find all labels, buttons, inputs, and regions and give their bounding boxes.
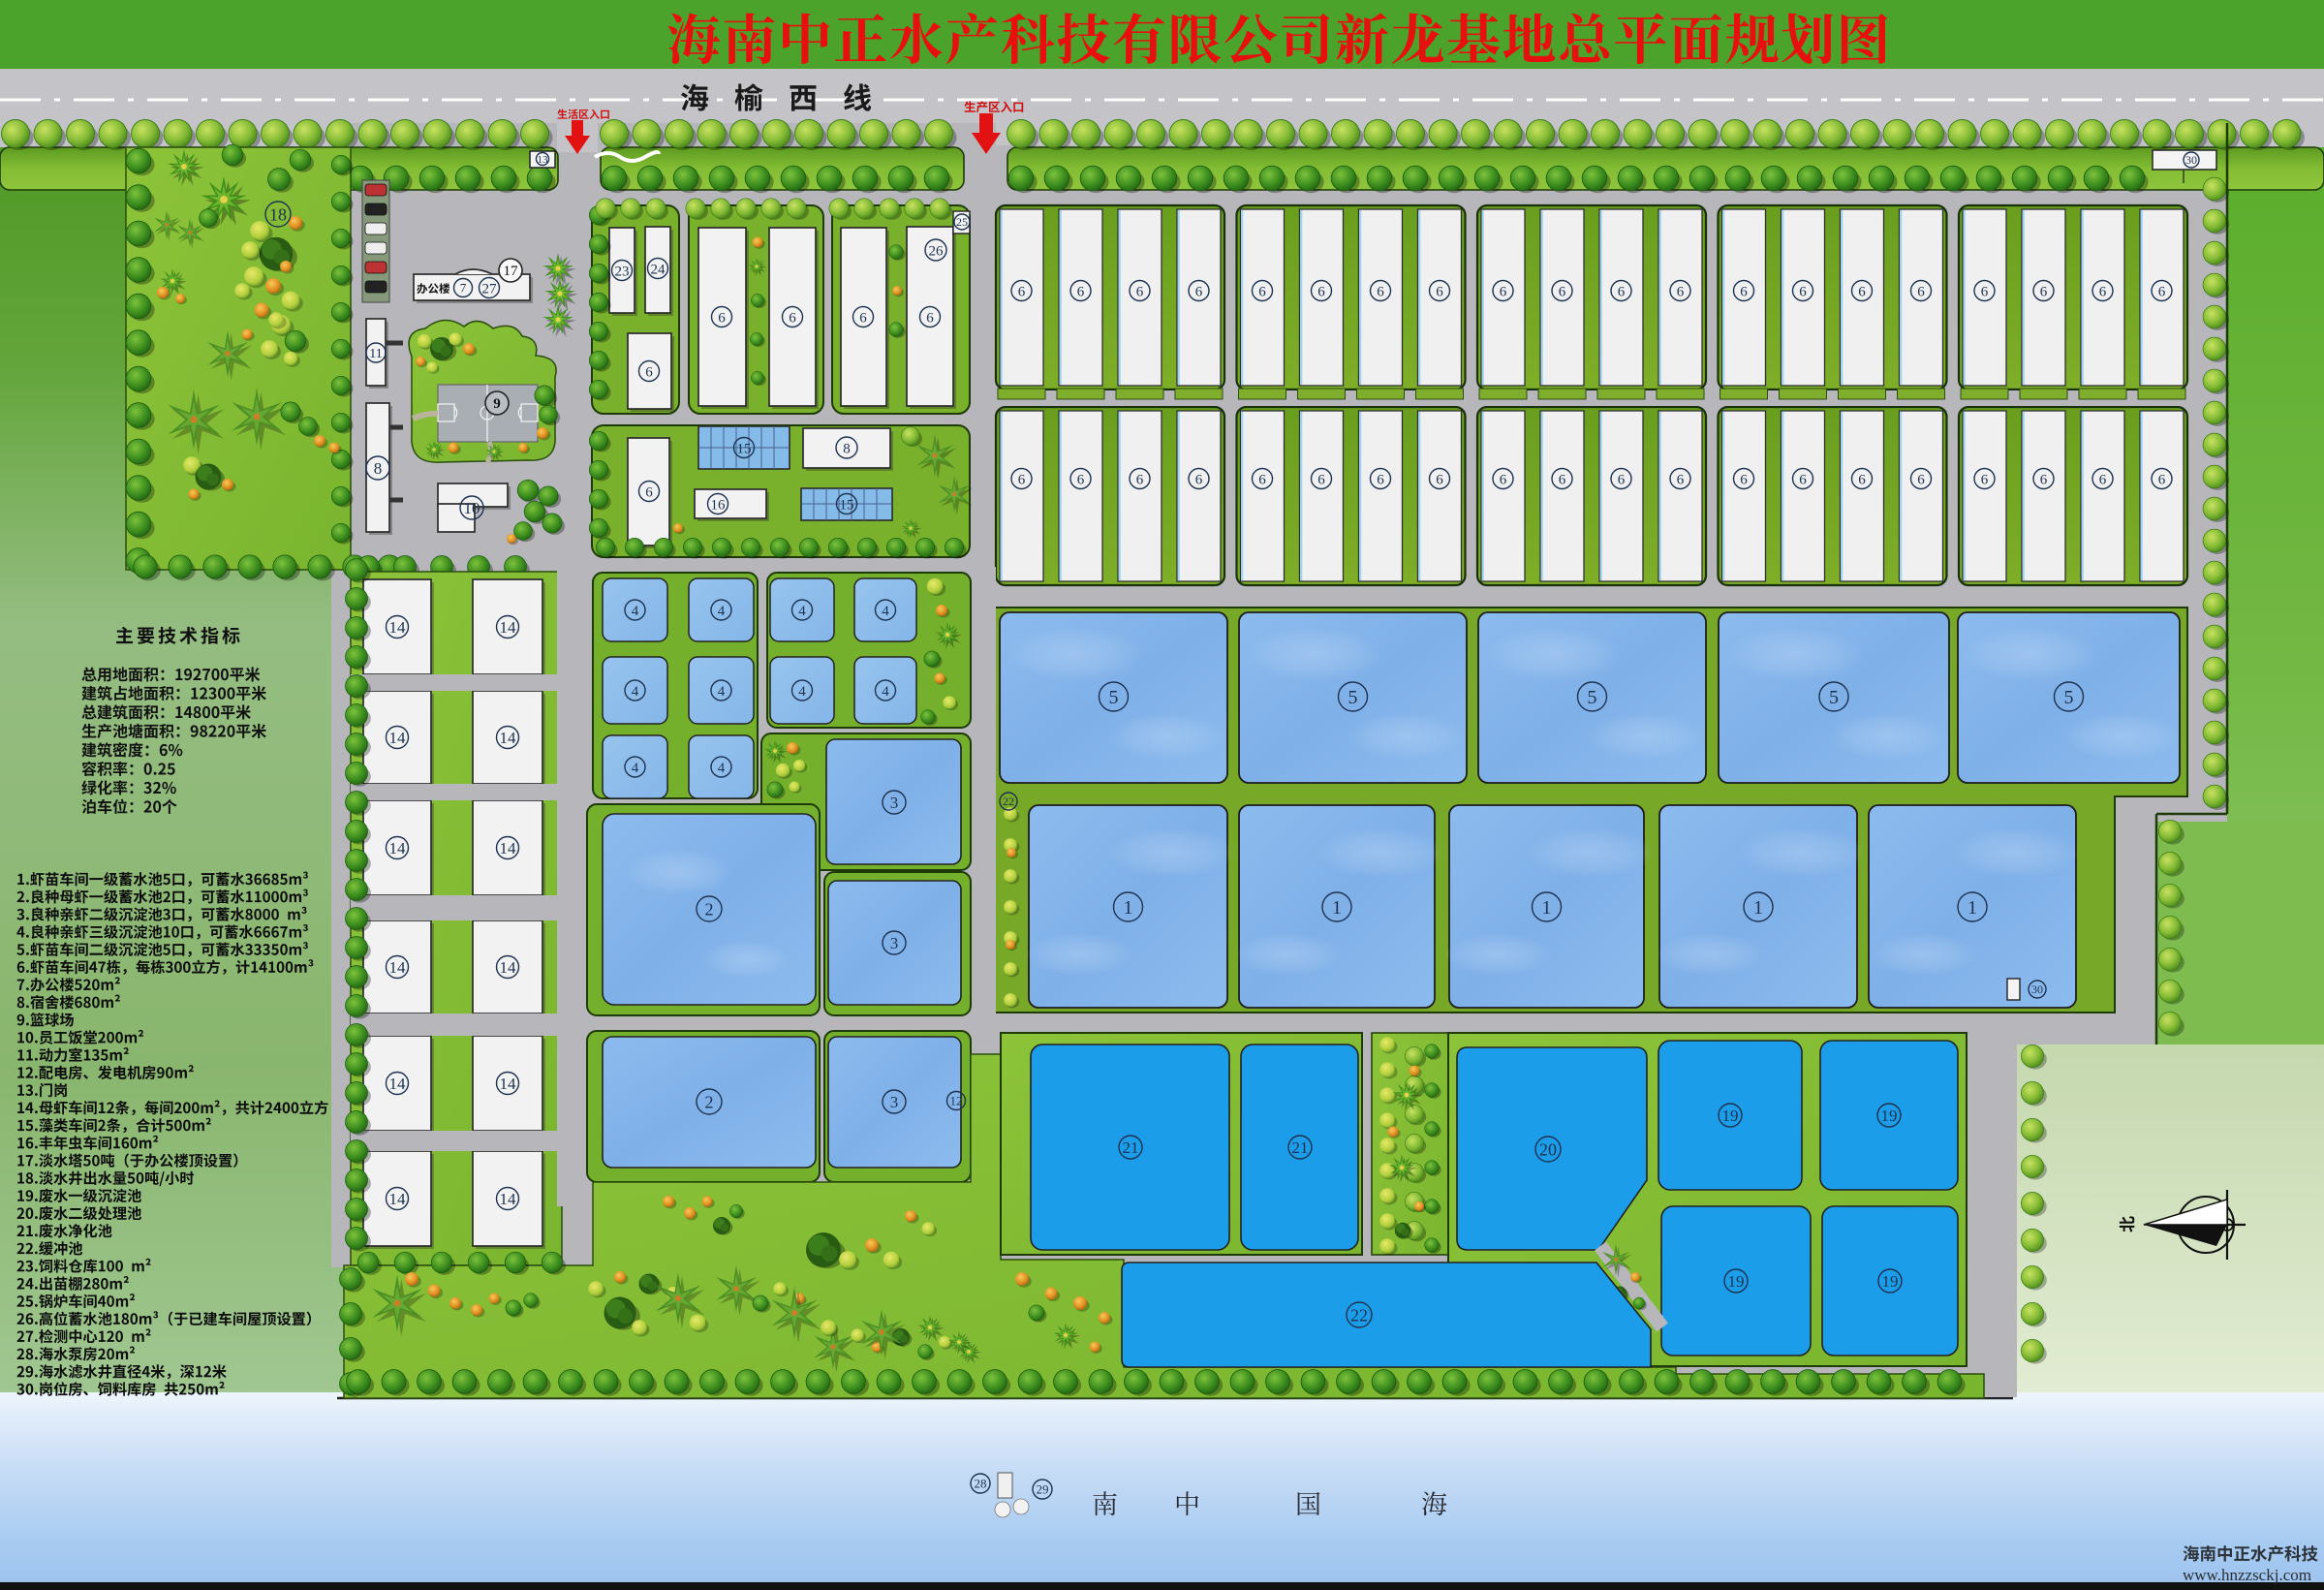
svg-text:14: 14: [389, 1190, 407, 1208]
svg-text:4: 4: [798, 604, 806, 619]
svg-text:4: 4: [632, 761, 639, 776]
svg-text:6: 6: [1136, 284, 1144, 299]
svg-text:6: 6: [1195, 284, 1203, 299]
svg-text:6: 6: [645, 364, 653, 380]
svg-text:6: 6: [2099, 472, 2107, 487]
svg-text:4: 4: [718, 761, 726, 776]
svg-text:6: 6: [1677, 472, 1685, 487]
svg-text:14: 14: [500, 839, 517, 857]
svg-text:30: 30: [2031, 982, 2043, 996]
svg-text:6: 6: [1077, 284, 1085, 299]
svg-text:14: 14: [500, 1075, 517, 1093]
svg-text:23: 23: [615, 264, 630, 279]
svg-text:17: 17: [504, 264, 519, 279]
svg-text:6: 6: [1436, 472, 1443, 487]
svg-text:6: 6: [1018, 284, 1026, 299]
svg-text:6: 6: [1917, 472, 1925, 487]
svg-text:2: 2: [705, 1092, 714, 1111]
svg-text:19: 19: [1722, 1107, 1739, 1125]
svg-text:20: 20: [1539, 1139, 1557, 1159]
svg-text:6: 6: [1258, 472, 1266, 487]
svg-text:6: 6: [1799, 472, 1807, 487]
svg-text:6: 6: [2040, 472, 2048, 487]
svg-text:4: 4: [718, 604, 726, 619]
svg-text:16: 16: [711, 497, 727, 513]
svg-text:15: 15: [737, 441, 752, 456]
svg-text:6: 6: [1377, 472, 1384, 487]
svg-text:6: 6: [859, 310, 867, 326]
svg-text:6: 6: [1799, 284, 1807, 299]
svg-text:4: 4: [798, 684, 806, 700]
svg-text:6: 6: [1677, 284, 1685, 299]
svg-text:6: 6: [1500, 284, 1507, 299]
svg-text:www.hnzzsckj.com: www.hnzzsckj.com: [2183, 1566, 2311, 1584]
svg-text:6: 6: [718, 310, 726, 326]
svg-text:6: 6: [2158, 284, 2166, 299]
svg-text:3: 3: [890, 934, 899, 952]
svg-text:6: 6: [926, 310, 934, 326]
svg-text:8: 8: [843, 441, 851, 456]
svg-text:13: 13: [538, 154, 549, 166]
svg-text:6: 6: [1317, 284, 1325, 299]
svg-text:11: 11: [369, 347, 382, 361]
svg-text:6: 6: [1981, 472, 1989, 487]
svg-text:22: 22: [1003, 795, 1014, 808]
svg-text:30: 30: [2185, 153, 2197, 167]
svg-text:6: 6: [2040, 284, 2048, 299]
svg-text:28: 28: [975, 1477, 987, 1491]
svg-text:6: 6: [1018, 472, 1026, 487]
svg-text:14: 14: [500, 618, 517, 637]
svg-text:1: 1: [1753, 897, 1763, 919]
svg-text:7: 7: [460, 281, 467, 296]
svg-text:4: 4: [632, 604, 639, 619]
svg-text:14: 14: [389, 958, 407, 977]
svg-text:14: 14: [500, 729, 517, 747]
svg-text:4: 4: [632, 684, 639, 700]
svg-text:19: 19: [1728, 1272, 1745, 1291]
svg-text:6: 6: [1559, 284, 1566, 299]
svg-text:1: 1: [1542, 897, 1552, 919]
svg-text:14: 14: [389, 729, 407, 747]
svg-text:6: 6: [2158, 472, 2166, 487]
svg-text:14: 14: [500, 958, 517, 977]
svg-text:6: 6: [1917, 284, 1925, 299]
svg-text:12: 12: [950, 1094, 963, 1108]
svg-text:6: 6: [1858, 472, 1866, 487]
svg-text:6: 6: [645, 484, 653, 500]
svg-text:29: 29: [1037, 1482, 1049, 1497]
svg-text:6: 6: [1436, 284, 1443, 299]
svg-text:6: 6: [1858, 284, 1866, 299]
svg-text:6: 6: [1077, 472, 1085, 487]
svg-text:1: 1: [1968, 897, 1977, 919]
svg-text:9: 9: [493, 396, 501, 412]
svg-text:15: 15: [840, 497, 854, 513]
svg-text:2: 2: [705, 899, 714, 919]
svg-text:4: 4: [882, 604, 889, 619]
svg-text:6: 6: [1317, 472, 1325, 487]
svg-text:5: 5: [2064, 687, 2074, 708]
svg-text:22: 22: [1350, 1305, 1368, 1325]
svg-text:19: 19: [1881, 1107, 1898, 1125]
svg-text:6: 6: [1136, 472, 1144, 487]
svg-text:4: 4: [718, 684, 726, 700]
svg-text:10: 10: [464, 499, 480, 517]
svg-text:1: 1: [1332, 897, 1342, 919]
svg-text:21: 21: [1292, 1138, 1309, 1157]
svg-text:6: 6: [1559, 472, 1566, 487]
svg-text:6: 6: [789, 310, 796, 326]
svg-text:6: 6: [1618, 284, 1626, 299]
svg-text:5: 5: [1109, 687, 1119, 708]
svg-text:6: 6: [2099, 284, 2107, 299]
svg-text:24: 24: [651, 262, 666, 277]
svg-text:14: 14: [389, 1075, 407, 1093]
svg-text:6: 6: [1377, 284, 1384, 299]
svg-text:6: 6: [1740, 472, 1748, 487]
svg-text:3: 3: [890, 794, 899, 812]
svg-text:14: 14: [389, 839, 407, 857]
svg-text:6: 6: [1740, 284, 1748, 299]
svg-text:6: 6: [1500, 472, 1507, 487]
svg-text:3: 3: [890, 1093, 899, 1111]
svg-text:27: 27: [482, 281, 498, 296]
svg-text:6: 6: [1981, 284, 1989, 299]
svg-text:1: 1: [1124, 897, 1133, 919]
svg-text:5: 5: [1829, 687, 1839, 708]
svg-text:4: 4: [882, 684, 889, 700]
svg-text:6: 6: [1195, 472, 1203, 487]
svg-text:26: 26: [929, 243, 945, 259]
svg-text:6: 6: [1618, 472, 1626, 487]
svg-text:6: 6: [1258, 284, 1266, 299]
svg-text:21: 21: [1123, 1138, 1139, 1157]
svg-text:19: 19: [1882, 1272, 1899, 1291]
svg-text:5: 5: [1588, 687, 1597, 708]
svg-text:8: 8: [374, 459, 383, 478]
svg-text:5: 5: [1348, 687, 1358, 708]
svg-text:14: 14: [389, 618, 407, 637]
svg-text:25: 25: [956, 215, 968, 229]
svg-text:18: 18: [269, 204, 287, 224]
svg-text:14: 14: [500, 1190, 517, 1208]
